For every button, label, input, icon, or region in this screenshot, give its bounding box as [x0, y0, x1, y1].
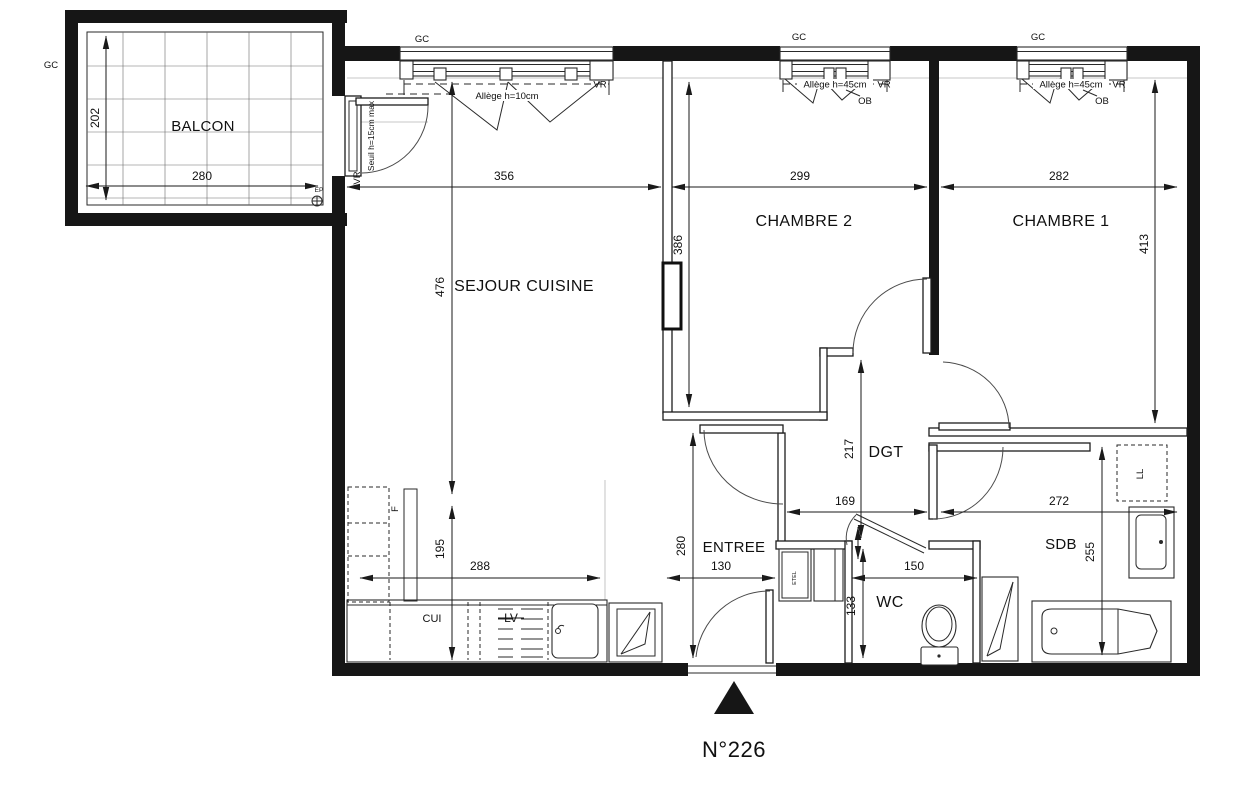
dim-sejour-height: 476	[433, 277, 447, 297]
vr-label-window1: VR	[593, 80, 606, 91]
window-sejour	[400, 47, 613, 130]
interior-walls	[663, 61, 1187, 663]
dim-chambre1-width: 282	[1049, 169, 1069, 183]
room-label-chambre1: CHAMBRE 1	[1013, 213, 1110, 230]
room-label-sejour: SEJOUR CUISINE	[454, 278, 594, 295]
washing-machine-label: LL	[1135, 469, 1146, 480]
dim-dgt-height: 217	[842, 439, 856, 459]
toilet-icon	[921, 605, 958, 665]
dim-wc-height: 133	[844, 596, 858, 616]
ep-drain-icon	[312, 196, 322, 206]
dim-cuisine-height: 195	[433, 539, 447, 559]
floor-plan-page: 280 202 356 299 282 476 386 413 217 169 …	[0, 0, 1253, 800]
fridge-icon	[348, 487, 417, 602]
room-label-wc: WC	[876, 594, 903, 611]
apartment-number: N°226	[702, 737, 766, 762]
dgt-door	[700, 425, 783, 504]
window-chambre1	[1017, 47, 1127, 103]
dim-balcon-width: 280	[192, 169, 212, 183]
gc-label-balcony: GC	[44, 60, 58, 71]
gc-label-window3: GC	[1031, 32, 1045, 43]
sdb-door	[929, 445, 1003, 519]
radiator-icon	[663, 263, 681, 329]
etel-closet	[779, 549, 843, 601]
kitchen-counter	[347, 487, 662, 662]
fridge-label: F	[390, 506, 401, 512]
dim-sdb-width: 272	[1049, 494, 1069, 508]
room-label-entree: ENTREE	[703, 539, 766, 556]
dimension-lines	[86, 36, 1177, 660]
dim-balcon-height: 202	[88, 108, 102, 128]
kitchen-sink-icon	[552, 604, 598, 658]
north-triangle-icon	[714, 681, 754, 714]
chambre2-door	[853, 278, 931, 353]
allege-label-window1: Allège h=10cm	[475, 91, 538, 102]
entrance-marker	[714, 681, 754, 714]
dim-sdb-height: 255	[1083, 542, 1097, 562]
room-label-balcon: BALCON	[171, 118, 235, 135]
room-label-dgt: DGT	[869, 444, 904, 461]
dim-cuisine-width: 288	[470, 559, 490, 573]
seuil-label: Seuil h=15cm max	[366, 100, 376, 171]
dim-wc-width: 150	[904, 559, 924, 573]
balcony-door	[345, 94, 452, 176]
chambre1-door	[939, 362, 1010, 430]
room-label-cui: CUI	[423, 613, 442, 625]
allege-label-window2: Allège h=45cm	[803, 80, 866, 91]
dim-chambre2-width: 299	[790, 169, 810, 183]
dim-chambre2-height: 386	[671, 235, 685, 255]
ep-label: EP	[315, 187, 324, 194]
sdb-duct-icon	[982, 577, 1018, 661]
gc-label-window2: GC	[792, 32, 806, 43]
dim-entree-height: 280	[674, 536, 688, 556]
kitchen-duct-icon	[609, 603, 662, 662]
dimension-texts: 280 202 356 299 282 476 386 413 217 169 …	[88, 108, 1151, 616]
dim-sejour-width: 356	[494, 169, 514, 183]
dim-entree-width: 130	[711, 559, 731, 573]
ob-label-window2: OB	[858, 96, 872, 107]
room-label-chambre2: CHAMBRE 2	[756, 213, 853, 230]
dim-dgt-width: 169	[835, 494, 855, 508]
vr-label-balcony-door: VR	[352, 171, 363, 184]
floor-plan-svg: 280 202 356 299 282 476 386 413 217 169 …	[0, 0, 1253, 800]
vr-label-window2: VR	[877, 80, 890, 91]
allege-label-window3: Allège h=45cm	[1039, 80, 1102, 91]
entry-door	[696, 590, 773, 663]
gc-label-window1: GC	[415, 34, 429, 45]
dim-chambre1-height: 413	[1137, 234, 1151, 254]
etel-label: ETEL	[792, 571, 798, 585]
sdb-sink-icon	[1129, 507, 1174, 578]
reference-lines	[347, 78, 1187, 600]
exterior-walls	[65, 10, 1200, 676]
vr-label-window3: VR	[1112, 80, 1125, 91]
window-chambre2	[780, 47, 890, 103]
ob-label-window3: OB	[1095, 96, 1109, 107]
room-label-sdb: SDB	[1045, 536, 1077, 553]
